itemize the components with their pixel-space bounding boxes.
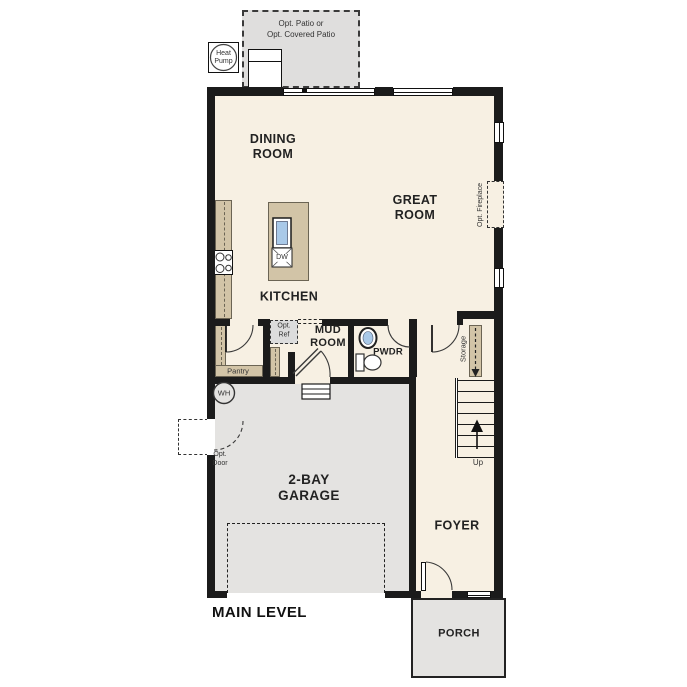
opt-door-label: Opt. Door <box>212 450 227 468</box>
powder-room-label: PWDR <box>373 346 403 357</box>
patio-line1: Opt. Patio or <box>267 19 335 30</box>
powder-door-arc <box>388 325 410 347</box>
mud-line1: MUD <box>310 324 346 337</box>
opt-ref-label: Opt. Ref <box>277 322 290 340</box>
heat-line2: Pump <box>214 58 232 66</box>
great-line2: ROOM <box>393 208 438 223</box>
opt-ref-line1: Opt. <box>277 322 290 331</box>
porch-label: PORCH <box>438 627 480 640</box>
heat-line1: Heat <box>214 49 232 57</box>
garage-line2: GARAGE <box>278 488 340 504</box>
dining-line2: ROOM <box>250 147 296 162</box>
opt-fireplace-label: Opt. Fireplace <box>477 183 485 227</box>
mud-line2: ROOM <box>310 337 346 350</box>
up-arrow-head <box>471 420 483 433</box>
burner-icon <box>216 265 224 273</box>
opt-door-line1: Opt. <box>212 450 227 459</box>
mud-garage-door-leaf <box>293 349 318 374</box>
dishwasher-label: DW <box>275 254 289 262</box>
floor-plan: DINING ROOM GREAT ROOM KITCHEN MUD ROOM … <box>0 0 687 687</box>
great-line1: GREAT <box>393 193 438 208</box>
dining-room-label: DINING ROOM <box>250 132 296 162</box>
foyer-label: FOYER <box>434 519 479 534</box>
up-label: Up <box>473 458 483 468</box>
opt-ref-line2: Ref <box>277 331 290 340</box>
garage-steps <box>302 384 330 399</box>
great-room-label: GREAT ROOM <box>393 193 438 223</box>
pantry-label: Pantry <box>227 367 249 376</box>
kitchen-sink-basin <box>277 222 288 245</box>
heat-pump-label: Heat Pump <box>214 49 232 65</box>
plan-title: MAIN LEVEL <box>212 604 307 622</box>
storage-arrow-head <box>472 369 480 377</box>
powder-sink-basin <box>363 332 373 345</box>
dining-line1: DINING <box>250 132 296 147</box>
burner-icon <box>226 265 232 271</box>
pantry-door-arc <box>226 325 253 352</box>
front-door-arc <box>426 562 452 590</box>
burner-icon <box>216 253 224 261</box>
garage-label: 2-BAY GARAGE <box>278 472 340 504</box>
toilet-tank <box>356 354 364 371</box>
storage-label: Storage <box>459 336 468 362</box>
kitchen-label: KITCHEN <box>260 290 318 305</box>
mud-garage-door-arc <box>321 351 330 377</box>
opt-door-line2: Door <box>212 459 227 468</box>
burner-icon <box>226 255 232 261</box>
patio-label: Opt. Patio or Opt. Covered Patio <box>267 19 335 41</box>
patio-line2: Opt. Covered Patio <box>267 30 335 41</box>
water-heater-label: WH <box>218 389 231 398</box>
garage-line1: 2-BAY <box>278 472 340 488</box>
storage-door-arc <box>432 325 459 352</box>
optional-door-arc <box>214 421 243 450</box>
mud-garage-door-leaf <box>296 351 321 376</box>
mud-room-label: MUD ROOM <box>310 324 346 350</box>
